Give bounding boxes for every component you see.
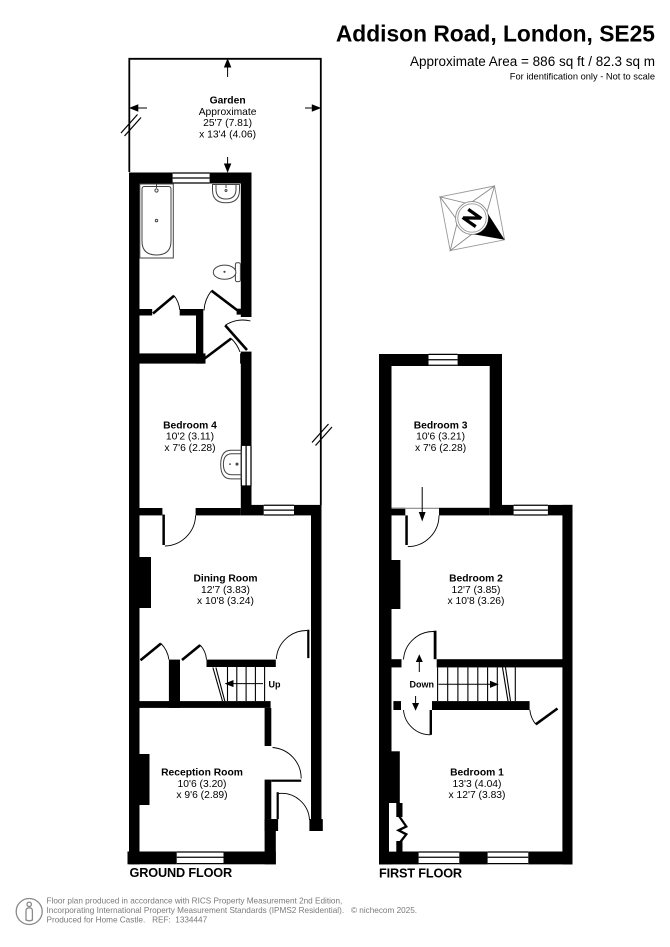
svg-text:x 10'8 (3.24): x 10'8 (3.24) — [197, 596, 254, 607]
svg-text:FIRST FLOOR: FIRST FLOOR — [379, 866, 462, 880]
svg-text:x 9'6 (2.89): x 9'6 (2.89) — [176, 790, 227, 801]
svg-text:For identification only - Not: For identification only - Not to scale — [510, 72, 655, 82]
svg-text:Bedroom 3: Bedroom 3 — [414, 420, 468, 431]
svg-text:Bedroom 1: Bedroom 1 — [450, 768, 504, 779]
svg-text:Produced for Home Castle. RE: Produced for Home Castle. REF: 1334447 — [47, 916, 208, 925]
svg-text:13'3 (4.04): 13'3 (4.04) — [453, 779, 502, 790]
svg-text:Floor plan produced in accorda: Floor plan produced in accordance with R… — [47, 897, 343, 906]
svg-text:12'7 (3.83): 12'7 (3.83) — [201, 585, 250, 596]
svg-text:10'6 (3.21): 10'6 (3.21) — [416, 432, 465, 443]
svg-text:x 10'8 (3.26): x 10'8 (3.26) — [448, 596, 505, 607]
svg-text:25'7 (7.81): 25'7 (7.81) — [203, 118, 252, 129]
svg-text:Reception Room: Reception Room — [161, 768, 243, 779]
svg-text:Approximate: Approximate — [199, 107, 257, 118]
svg-text:10'6 (3.20): 10'6 (3.20) — [178, 779, 227, 790]
svg-text:Up: Up — [269, 680, 281, 690]
svg-text:GROUND FLOOR: GROUND FLOOR — [130, 866, 233, 880]
svg-text:x 13'4 (4.06): x 13'4 (4.06) — [199, 129, 256, 140]
svg-text:Garden: Garden — [210, 96, 246, 107]
svg-text:12'7 (3.85): 12'7 (3.85) — [452, 585, 501, 596]
svg-text:Approximate Area = 886 sq ft /: Approximate Area = 886 sq ft / 82.3 sq m — [410, 54, 655, 69]
svg-text:Dining Room: Dining Room — [193, 574, 257, 585]
svg-text:10'2 (3.11): 10'2 (3.11) — [166, 432, 214, 443]
svg-text:x 7'6 (2.28): x 7'6 (2.28) — [415, 443, 466, 454]
svg-text:x 7'6 (2.28): x 7'6 (2.28) — [164, 443, 215, 454]
svg-text:Addison Road, London, SE25: Addison Road, London, SE25 — [336, 21, 655, 47]
svg-text:Bedroom 4: Bedroom 4 — [163, 420, 217, 431]
svg-text:Down: Down — [410, 680, 435, 690]
svg-text:Bedroom 2: Bedroom 2 — [449, 574, 503, 585]
svg-text:Incorporating International Pr: Incorporating International Property Mea… — [47, 906, 418, 915]
svg-text:x 12'7 (3.83): x 12'7 (3.83) — [449, 790, 506, 801]
